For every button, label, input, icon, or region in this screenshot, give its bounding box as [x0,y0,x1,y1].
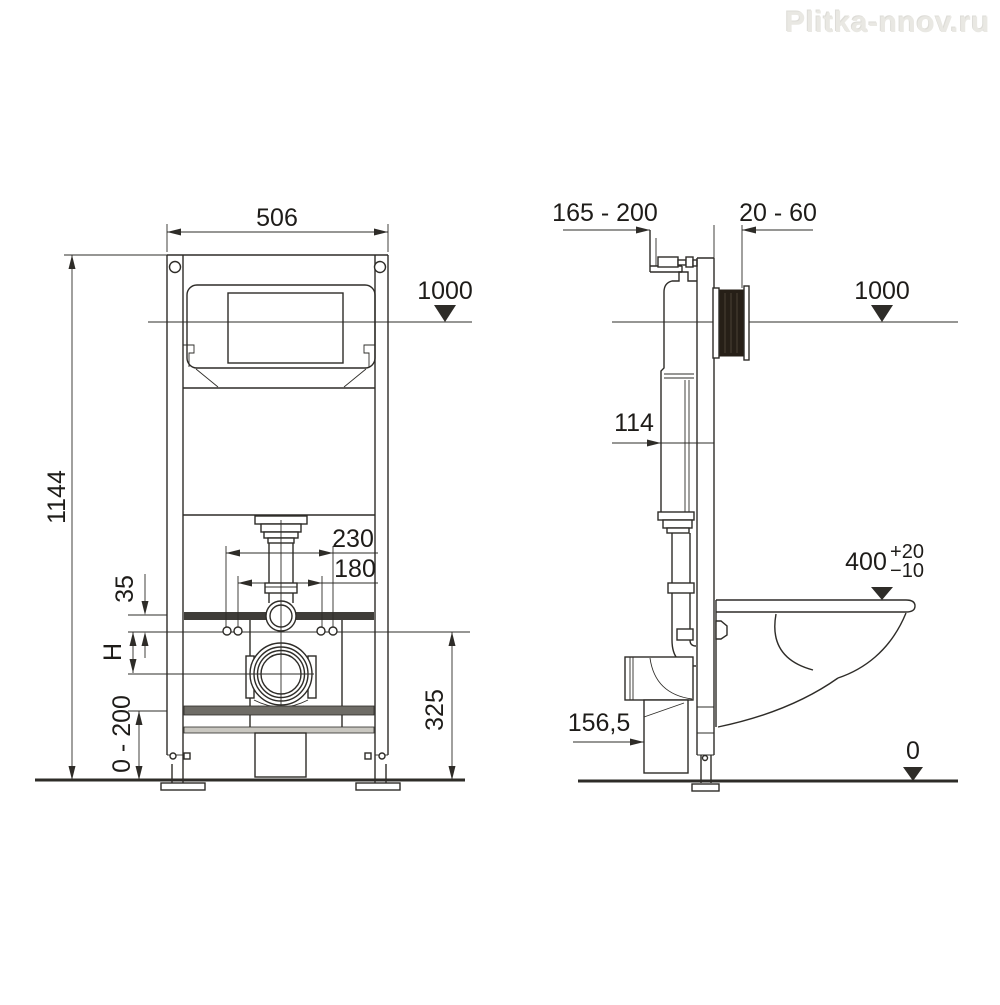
cistern-front [183,388,375,515]
level-marker-front [434,305,456,322]
foot-plate-side [692,784,719,791]
installation-drawing: 506 1144 1000 230 180 35 H 0 - 200 325 [0,0,1000,1000]
foot-plate [356,783,400,790]
corrugated-connector [713,286,749,360]
dim-0-200: 0 - 200 [108,695,136,773]
dim-156: 156,5 [568,709,631,737]
dim-230: 230 [332,525,374,553]
foot-plate [161,783,205,790]
cistern-side [658,272,697,666]
dim-H: H [99,643,127,661]
bottom-rail [184,727,374,733]
mounting-bolt [317,627,325,635]
dim-35: 35 [111,575,139,603]
angle-valve [658,257,697,267]
outlet-box [255,733,306,777]
dim-400: 400 [845,548,887,576]
corner-hole [375,262,386,273]
dim-1144: 1144 [43,470,71,524]
level-1000-side: 1000 [854,277,910,305]
zero-level-marker [903,767,923,781]
level-1000-front: 1000 [417,277,473,305]
frame-side [697,258,714,755]
side-view: 165 - 200 20 - 60 1000 114 400 +20 −10 1… [552,199,958,791]
watermark: Plitka-nnov.ru [785,6,990,40]
leg-side [697,755,714,783]
toilet-bowl [677,600,915,727]
corner-hole [170,262,181,273]
dim-180: 180 [334,555,376,583]
seat-height-marker [871,587,893,600]
mounting-bolt [223,627,231,635]
lower-rail [184,706,374,715]
dim-506: 506 [256,204,298,232]
front-view: 506 1144 1000 230 180 35 H 0 - 200 325 [35,204,473,790]
drain-elbow-side [625,657,693,773]
dim-114: 114 [614,409,654,437]
level-marker-side [871,305,893,322]
mounting-bolt [234,627,242,635]
dim-400-minus: −10 [890,560,924,582]
flush-plate-panel [183,285,375,387]
dim-20-60: 20 - 60 [739,199,817,227]
dim-165-200: 165 - 200 [552,199,658,227]
fixing-wedge [716,621,727,639]
dim-325: 325 [421,689,449,731]
dim-0: 0 [906,737,920,765]
mounting-bolt [329,627,337,635]
